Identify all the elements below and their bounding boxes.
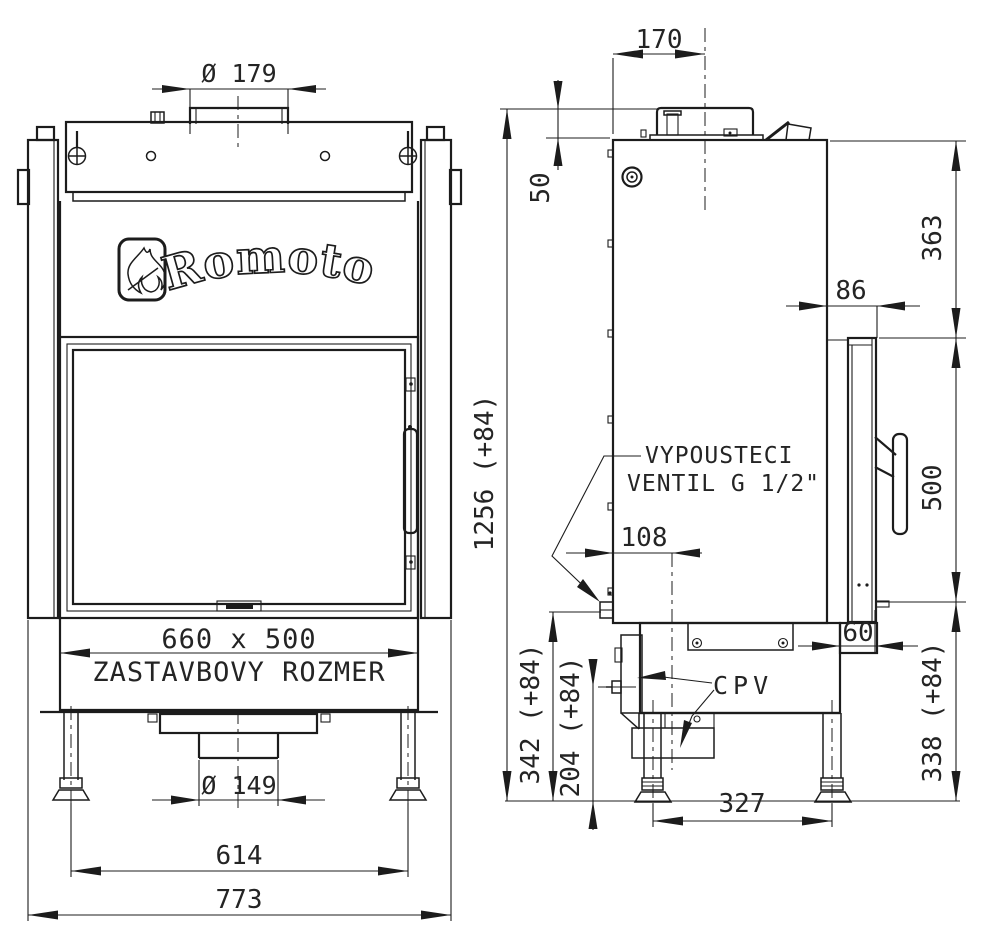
dim-flue-center-offset-text: 170 [636, 25, 683, 55]
right-bracket [421, 127, 461, 618]
dim-flue-diameter: Ø 179 [152, 59, 326, 152]
dim-flue-center-offset: 170 [613, 25, 705, 215]
dim-collar-height-text: 50 [526, 172, 556, 203]
dim-door-bottom-height: 338 (+84) [918, 602, 961, 801]
dim-door-height-text: 500 [918, 465, 948, 512]
panel-screw-right [399, 147, 417, 165]
panel-screw-left [68, 147, 86, 165]
door-handle-side [875, 434, 907, 534]
side-leg-left [635, 700, 671, 806]
dim-cpv-height: 204 (+84) [556, 657, 636, 830]
cpv-label-text: CPV [713, 671, 773, 700]
dim-collar-height: 50 [500, 80, 657, 204]
drain-valve-label: VYPOUSTECI VENTIL G 1/2" [552, 443, 820, 602]
dim-outlet-diameter-text: Ø 149 [201, 771, 276, 800]
dim-base-step: 60 [798, 610, 918, 653]
door-side [827, 338, 907, 622]
dim-overall-height: 1256 (+84) [470, 109, 512, 801]
panel-hole-left [147, 152, 156, 161]
door-latch [217, 601, 261, 611]
dim-base-step-text: 60 [842, 618, 873, 648]
fire-door [59, 337, 418, 618]
technical-drawing-sheet: Romotop [0, 0, 1003, 949]
drain-valve-label-line2: VENTIL G 1/2" [627, 471, 820, 497]
dim-build-size: 660 x 500 ZASTAVBOVY ROZMER [60, 624, 418, 688]
dim-door-bottom-height-text: 338 (+84) [918, 642, 948, 783]
damper-lever [766, 122, 811, 140]
dim-overall-width-text: 773 [216, 885, 263, 915]
side-view: 170 50 1256 (+84) 363 [470, 25, 966, 830]
dim-leg-span-text: 327 [719, 789, 766, 819]
cpv-label: CPV [637, 671, 773, 748]
side-leg-right [815, 700, 851, 806]
front-view: Romotop [0, 0, 461, 921]
fireplace-insert-drawing: Romotop [0, 0, 1003, 949]
cpv-connection-box [606, 635, 642, 729]
dim-overall-height-text: 1256 (+84) [470, 395, 500, 552]
label-build-size-text: ZASTAVBOVY ROZMER [92, 657, 385, 688]
dim-valve-offset-text: 108 [621, 523, 668, 553]
dim-valve-height-text: 342 (+84) [516, 644, 546, 785]
dim-top-to-door-text: 363 [918, 215, 948, 262]
dim-door-offset: 86 [786, 276, 920, 338]
dim-cpv-height-text: 204 (+84) [556, 657, 586, 798]
dim-build-size-text: 660 x 500 [161, 624, 316, 655]
dim-door-offset-text: 86 [835, 276, 866, 306]
top-panel [66, 122, 412, 201]
drain-valve-label-line1: VYPOUSTECI [645, 443, 793, 469]
dim-valve-offset: 108 [566, 523, 702, 770]
dim-feet-span: 614 [71, 803, 408, 877]
dim-flue-diameter-text: Ø 179 [201, 59, 276, 88]
inspection-fitting [623, 168, 642, 187]
flame-icon [119, 239, 165, 300]
dim-leg-span: 327 [653, 789, 832, 827]
front-leg-left [53, 706, 89, 806]
panel-hole-right [321, 152, 330, 161]
left-bracket [18, 127, 58, 618]
front-leg-right [390, 706, 426, 806]
dim-door-height: 500 [877, 338, 966, 602]
flue-box [650, 108, 763, 140]
dim-feet-span-text: 614 [216, 841, 263, 871]
